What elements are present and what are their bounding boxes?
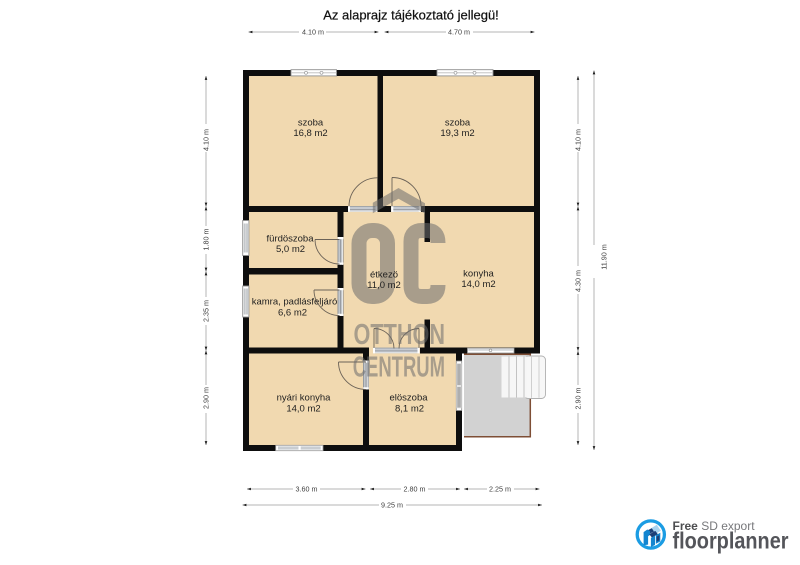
svg-text:5,0 m2: 5,0 m2 [276,244,305,255]
svg-text:OTTHON: OTTHON [354,319,446,351]
svg-text:fürdöszoba: fürdöszoba [266,234,314,245]
svg-text:11.90 m: 11.90 m [599,244,608,269]
svg-text:6,6 m2: 6,6 m2 [278,308,307,319]
svg-text:2.90 m: 2.90 m [573,388,582,410]
svg-text:CENTRUM: CENTRUM [353,351,445,383]
svg-text:Az alaprajz tájékoztató jelleg: Az alaprajz tájékoztató jellegü! [323,8,499,23]
svg-text:nyári konyha: nyári konyha [277,393,332,404]
svg-text:14,0 m2: 14,0 m2 [461,279,495,290]
svg-text:2.25 m: 2.25 m [489,485,511,494]
svg-text:1.80 m: 1.80 m [201,229,210,251]
svg-text:2.35 m: 2.35 m [201,300,210,322]
svg-text:9.25 m: 9.25 m [381,501,403,510]
svg-text:4.10 m: 4.10 m [201,129,210,151]
svg-text:4.30 m: 4.30 m [573,270,582,292]
svg-text:19,3 m2: 19,3 m2 [440,128,474,139]
svg-text:8,1 m2: 8,1 m2 [395,404,424,415]
svg-text:4.10 m: 4.10 m [573,129,582,151]
svg-text:3.60 m: 3.60 m [296,485,318,494]
svg-text:szoba: szoba [298,118,324,129]
svg-text:elöszoba: elöszoba [389,393,428,404]
svg-text:11,0 m2: 11,0 m2 [367,280,401,291]
svg-text:kamra, padlásfeljáró: kamra, padlásfeljáró [252,297,338,308]
svg-text:szoba: szoba [445,118,471,129]
svg-text:2.80 m: 2.80 m [404,485,426,494]
svg-text:16,8 m2: 16,8 m2 [293,128,327,139]
svg-text:4.10 m: 4.10 m [302,28,324,37]
svg-text:konyha: konyha [463,269,494,280]
svg-text:étkezö: étkezö [370,270,398,281]
svg-text:14,0 m2: 14,0 m2 [286,404,320,415]
svg-text:floorplanner: floorplanner [673,528,789,554]
svg-text:2.90 m: 2.90 m [201,387,210,409]
svg-text:4.70 m: 4.70 m [448,28,470,37]
